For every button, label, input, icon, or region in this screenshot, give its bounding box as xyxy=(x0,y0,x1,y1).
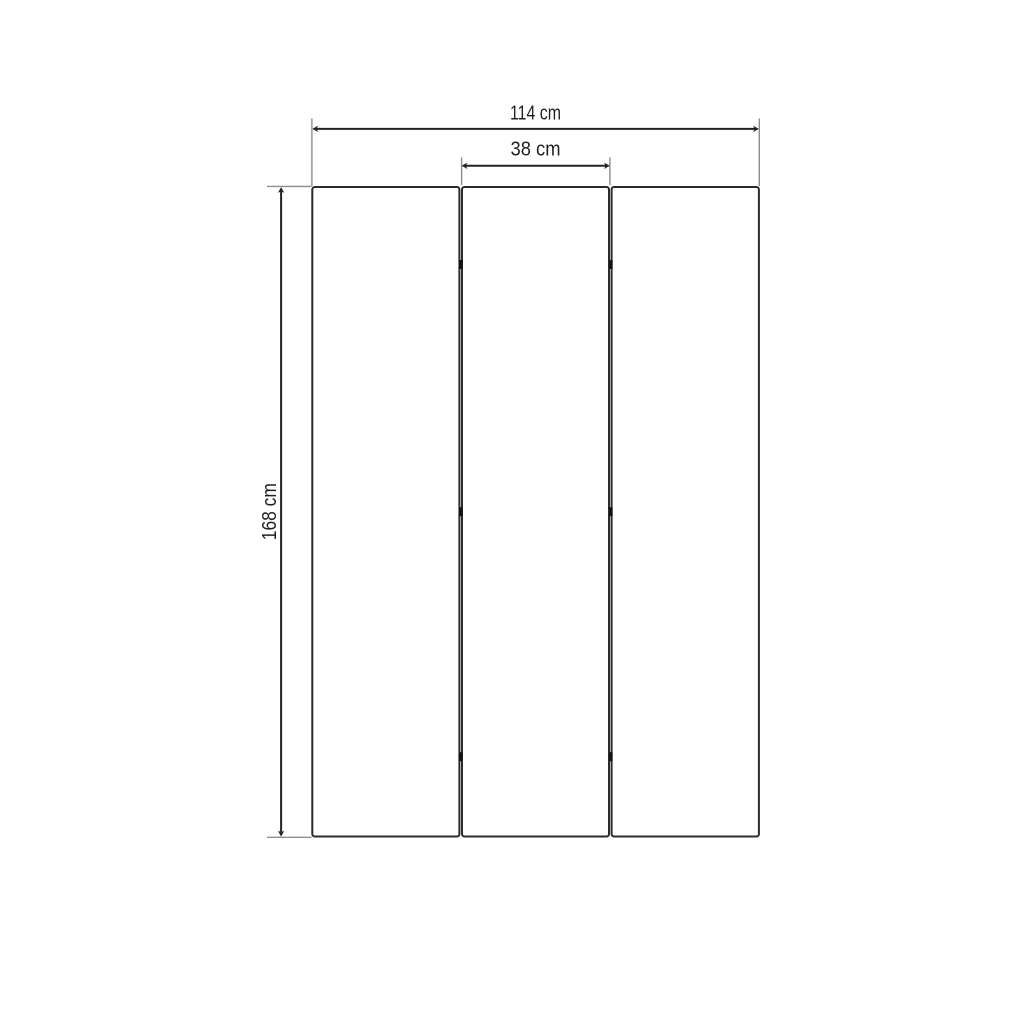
svg-text:168 cm: 168 cm xyxy=(258,483,281,540)
svg-text:114 cm: 114 cm xyxy=(510,101,561,124)
svg-text:38 cm: 38 cm xyxy=(511,137,561,160)
